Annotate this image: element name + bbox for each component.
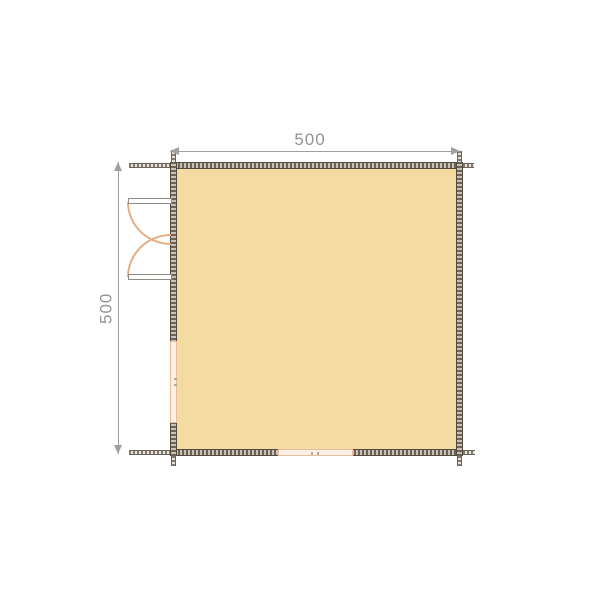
- dimension-line-top: [170, 151, 460, 152]
- dimension-line-left: [118, 162, 119, 454]
- log-end-top-left: [129, 163, 170, 168]
- window-left: [170, 341, 177, 423]
- floor-plan-canvas: 500 500: [0, 0, 600, 600]
- wall-right: [456, 162, 463, 456]
- window-mullion-icon: [311, 452, 313, 455]
- window-bottom: [278, 449, 353, 456]
- door-leaf-bottom: [128, 274, 172, 280]
- log-end-left-bottom: [171, 456, 176, 466]
- dimension-label-top: 500: [165, 131, 455, 148]
- log-end-right-bottom: [457, 456, 462, 466]
- room-floor: [176, 168, 457, 449]
- log-end-bottom-left: [129, 450, 170, 455]
- dimension-arrow-left-icon: [170, 147, 179, 155]
- window-mullion-icon: [174, 378, 177, 380]
- log-end-bottom-right: [463, 450, 475, 455]
- door-swing-arc-bottom-icon: [127, 234, 171, 277]
- wall-top: [170, 162, 463, 169]
- door-leaf-top: [128, 198, 172, 204]
- dimension-label-left: 500: [95, 162, 117, 454]
- window-mullion-icon: [317, 452, 319, 455]
- window-mullion-icon: [174, 384, 177, 386]
- log-end-top-right: [463, 163, 474, 168]
- dimension-arrow-right-icon: [451, 147, 460, 155]
